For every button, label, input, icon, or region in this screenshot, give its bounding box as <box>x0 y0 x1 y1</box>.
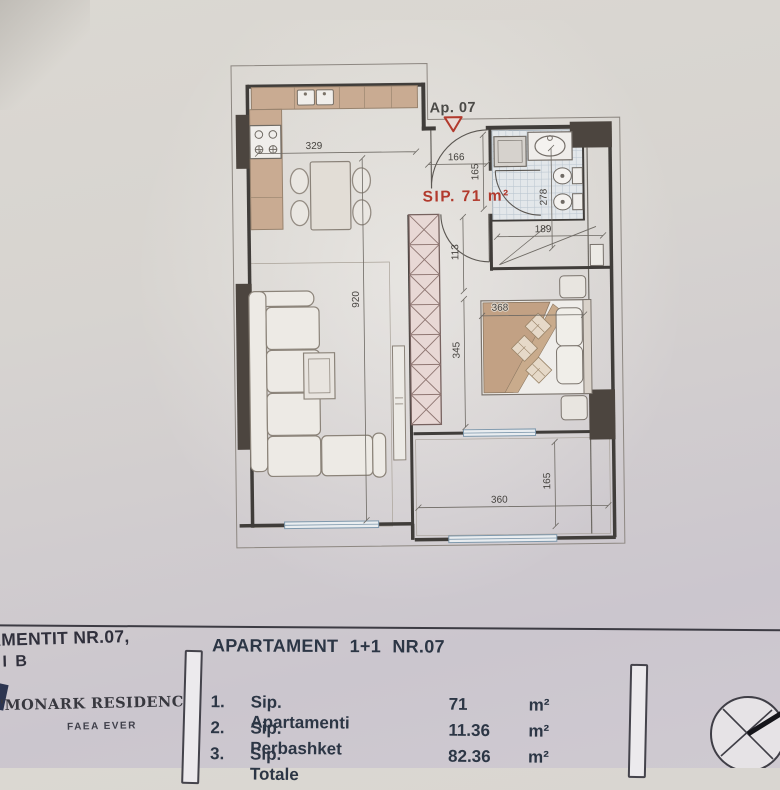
area-table: 1. Sip. Apartamenti 71 m² 2. Sip. Perbas… <box>0 0 780 772</box>
row-number: 1. <box>211 692 225 712</box>
north-compass-icon <box>696 690 780 768</box>
row-number: 2. <box>210 718 224 738</box>
row-value: 82.36 <box>448 747 528 768</box>
row-value: 11.36 <box>448 721 528 742</box>
row-unit: m² <box>528 747 549 767</box>
row-unit: m² <box>529 695 550 715</box>
row-value: 71 <box>449 695 529 716</box>
row-label: Sip. Totale <box>250 745 299 786</box>
row-unit: m² <box>528 721 549 741</box>
row-number: 3. <box>210 744 224 764</box>
